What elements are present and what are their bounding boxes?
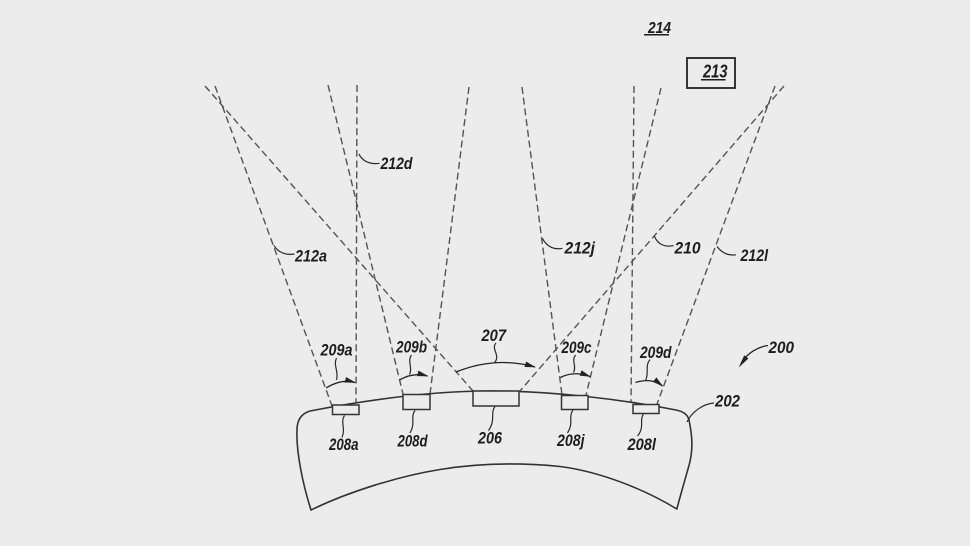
svg-text:209a: 209a — [320, 342, 353, 360]
svg-text:207: 207 — [481, 327, 507, 345]
svg-text:200: 200 — [768, 339, 795, 357]
svg-text:212j: 212j — [564, 240, 596, 258]
svg-text:210: 210 — [674, 240, 702, 258]
svg-text:208d: 208d — [397, 433, 429, 451]
svg-text:212a: 212a — [294, 248, 327, 266]
svg-text:208l: 208l — [627, 436, 657, 454]
svg-text:213: 213 — [702, 61, 728, 82]
svg-text:206: 206 — [477, 430, 503, 448]
svg-text:202: 202 — [714, 393, 740, 411]
svg-text:209b: 209b — [395, 339, 427, 357]
svg-text:208j: 208j — [556, 432, 585, 450]
svg-text:212d: 212d — [380, 155, 414, 173]
svg-text:209d: 209d — [639, 344, 672, 362]
svg-text:209c: 209c — [561, 339, 592, 357]
svg-text:212l: 212l — [740, 247, 769, 265]
svg-text:208a: 208a — [328, 436, 358, 454]
